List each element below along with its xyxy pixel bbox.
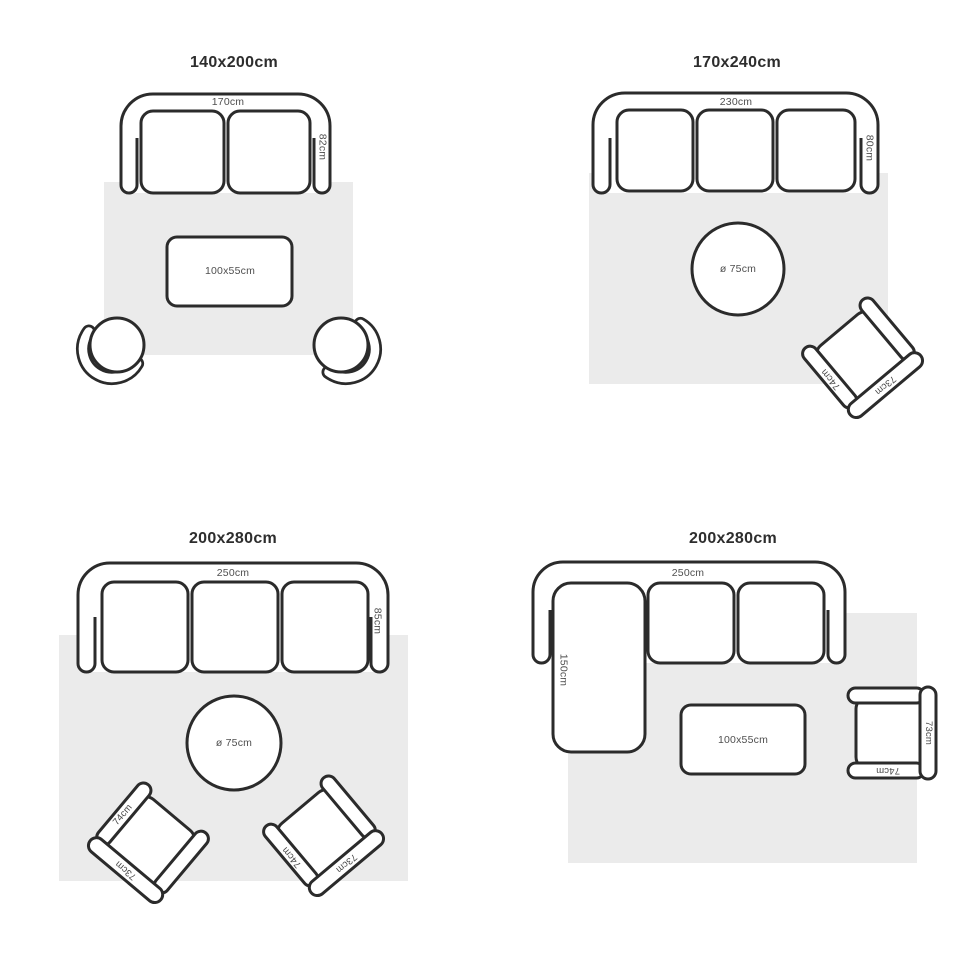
sofa-cushion: [141, 111, 224, 193]
sofa-depth-label: 80cm: [864, 135, 875, 161]
sofa-cushion: [192, 582, 278, 672]
armchair-back-label: 73cm: [923, 721, 933, 745]
sofa-width-label: 250cm: [672, 568, 705, 579]
sofa-cushion: [282, 582, 368, 672]
sofa-width-label: 170cm: [212, 97, 245, 108]
round-table-size-label: ø 75cm: [720, 264, 756, 275]
armchair-seat: [856, 697, 926, 769]
sofa-depth-label: 82cm: [317, 134, 328, 160]
three-seat-sofa: [593, 93, 878, 193]
sofa-cushion: [228, 111, 310, 193]
rug-size-title: 170x240cm: [693, 55, 781, 71]
sofa-cushion: [777, 110, 855, 191]
rug-size-title: 200x280cm: [189, 531, 277, 547]
rug-size-guide-diagram: 140x200cm 170cm 82cm 100x55cm 170x240cm …: [0, 0, 970, 970]
sofa-depth-label: 85cm: [372, 608, 383, 634]
sofa-cushion: [648, 583, 734, 663]
sofa-cushion: [617, 110, 693, 191]
armchair-armrest-right: [848, 688, 924, 703]
chair-seat: [90, 318, 144, 372]
chair-seat: [314, 318, 368, 372]
quadrant-200x280-sofa: [0, 485, 485, 970]
sofa-width-label: 250cm: [217, 568, 250, 579]
rug-size-title: 200x280cm: [689, 531, 777, 547]
sofa-cushion: [697, 110, 773, 191]
quadrant-170x240: [485, 0, 970, 485]
sofa-width-label: 230cm: [720, 97, 753, 108]
coffee-table-size-label: 100x55cm: [205, 266, 255, 277]
sofa-cushion: [102, 582, 188, 672]
rug-size-title: 140x200cm: [190, 55, 278, 71]
coffee-table-size-label: 100x55cm: [718, 735, 768, 746]
chaise-length-label: 150cm: [558, 654, 569, 687]
sofa-cushion: [738, 583, 824, 663]
two-seat-sofa: [121, 94, 330, 193]
quadrant-200x280-sectional: [485, 485, 970, 970]
quadrant-140x200: [0, 0, 485, 485]
round-table-size-label: ø 75cm: [216, 738, 252, 749]
armchair-arm-label: 74cm: [876, 765, 900, 775]
three-seat-sofa: [78, 563, 388, 672]
